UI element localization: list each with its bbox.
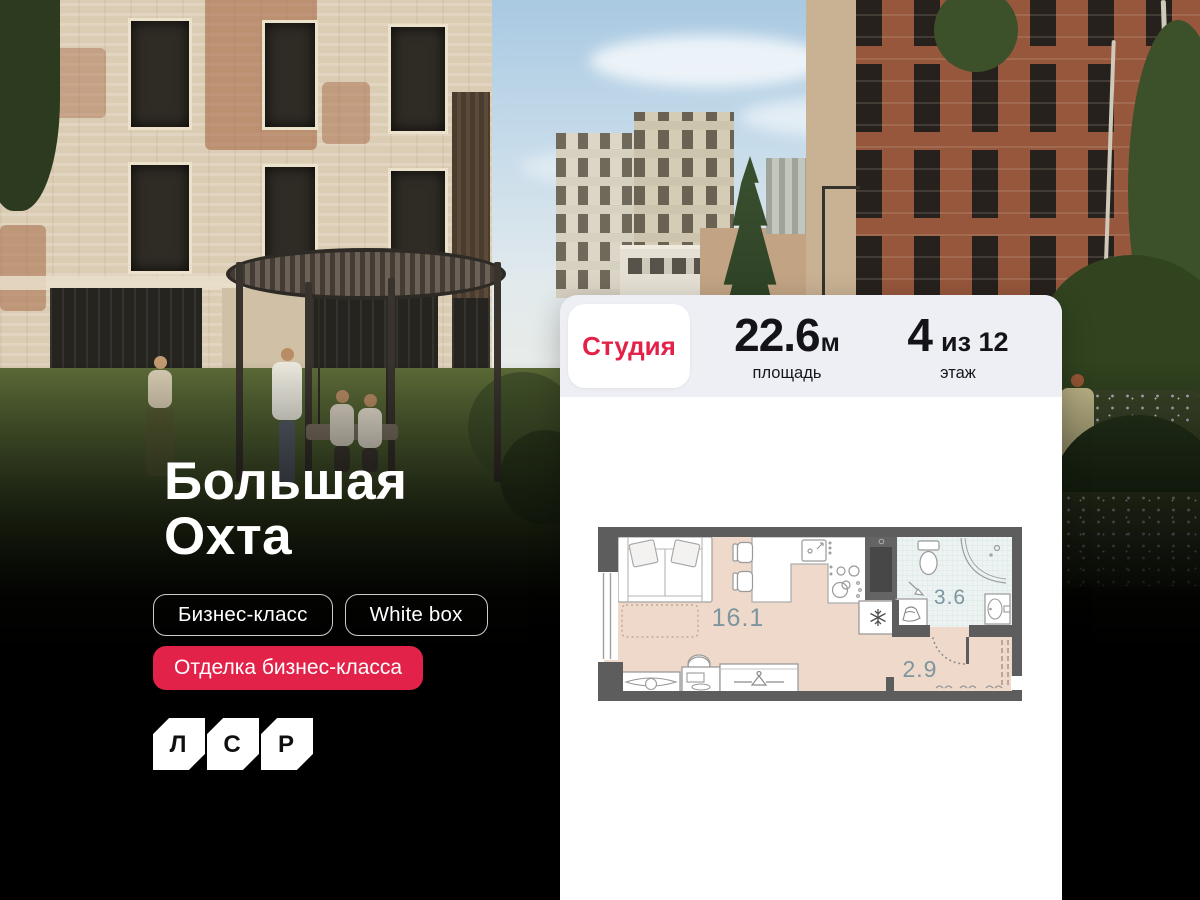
area-unit: м: [821, 327, 840, 358]
apartment-type-label: Студия: [582, 331, 676, 362]
floor-value: 4: [907, 308, 932, 362]
card-header: Студия 22.6м площадь 4из 12 этаж: [560, 295, 1062, 397]
logo-letter: С: [223, 731, 240, 759]
listing-card[interactable]: Студия 22.6м площадь 4из 12 этаж: [560, 295, 1062, 900]
toilet-icon: [918, 541, 939, 575]
floor-plan: 16.1 3.6 2.9: [598, 525, 1022, 701]
living-area-label: 16.1: [712, 604, 765, 632]
shaft-inner: [870, 547, 892, 592]
promo-banner: Большая Охта Бизнес-класс White box Отде…: [0, 0, 1200, 900]
area-value: 22.6: [734, 308, 820, 362]
floor-caption: этаж: [878, 364, 1038, 383]
window-icon: [598, 572, 618, 660]
logo-tile: С: [207, 718, 259, 770]
bathroom-sink-icon: [985, 594, 1010, 624]
project-title-line2: Охта: [164, 509, 407, 564]
apartment-type-chip: Студия: [568, 304, 690, 388]
floor-stat: 4из 12 этаж: [878, 308, 1038, 383]
desk-icon: [682, 667, 720, 693]
area-stat: 22.6м площадь: [702, 308, 872, 383]
wardrobe-icon: [720, 664, 798, 693]
logo-letter: Л: [170, 731, 187, 759]
project-title-line1: Большая: [164, 454, 407, 509]
floor-value-row: 4из 12: [878, 308, 1038, 362]
lsr-logo: Л С Р: [153, 718, 313, 770]
fridge-icon: [859, 601, 897, 634]
bathroom-area-label: 3.6: [934, 586, 966, 609]
logo-letter: Р: [278, 731, 294, 759]
tag-white-box: White box: [345, 594, 488, 636]
tag-list: Бизнес-класс White box: [153, 594, 488, 636]
card-body: 16.1 3.6 2.9: [560, 397, 1062, 900]
tag-business-class: Бизнес-класс: [153, 594, 333, 636]
entrance-opening: [1011, 676, 1022, 690]
area-caption: площадь: [702, 364, 872, 383]
finishing-badge: Отделка бизнес-класса: [153, 646, 423, 690]
sofa-icon: [618, 537, 712, 602]
logo-tile: Л: [153, 718, 205, 770]
area-value-row: 22.6м: [702, 308, 872, 362]
tv-stand-icon: [622, 672, 680, 692]
floor-suffix: из 12: [941, 327, 1009, 358]
washing-machine-icon: [896, 599, 927, 628]
logo-tile: Р: [261, 718, 313, 770]
project-title: Большая Охта: [164, 454, 407, 564]
hallway-area-label: 2.9: [903, 656, 938, 682]
